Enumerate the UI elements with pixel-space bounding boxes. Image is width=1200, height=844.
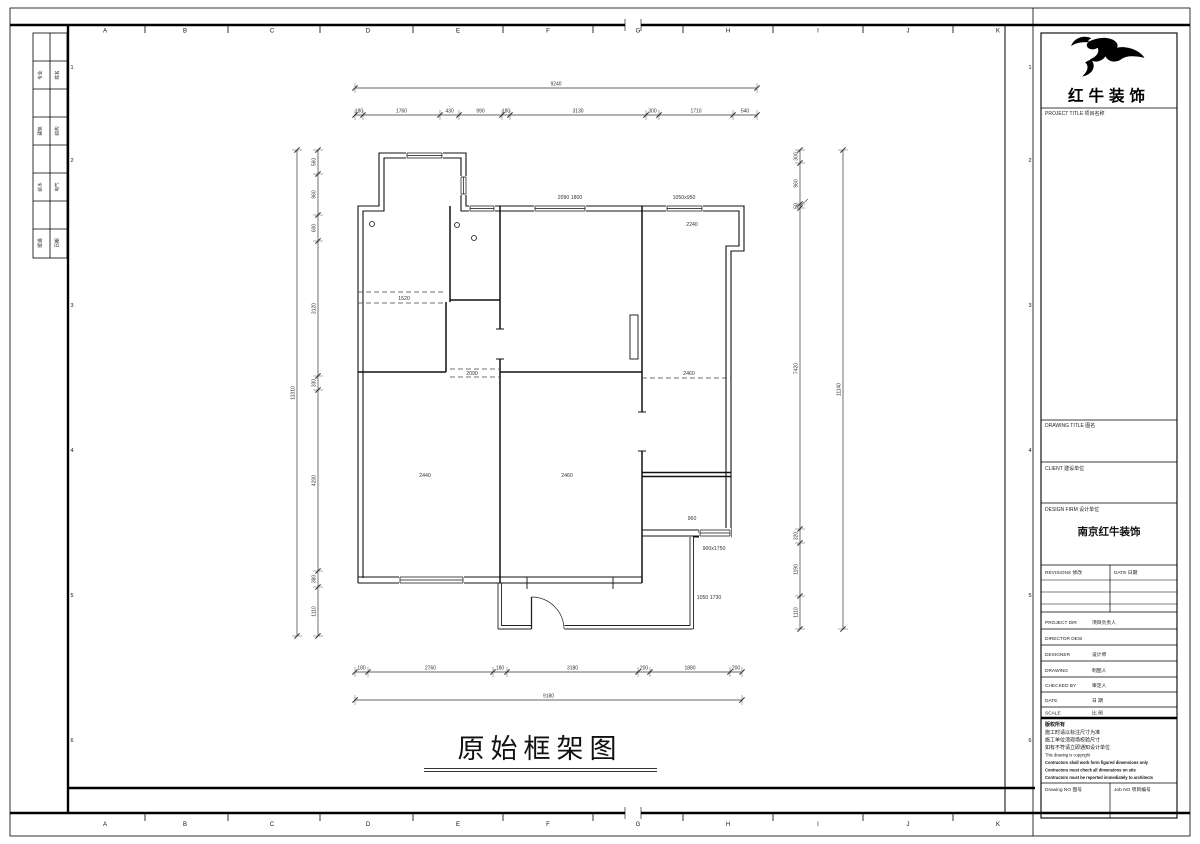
grid-letter-bottom: I: [817, 822, 819, 828]
dim-value: 430: [445, 109, 454, 115]
dim-value: 1110: [312, 606, 318, 617]
staff-label-cn: 设计师: [1092, 651, 1107, 658]
date-col-label: DATE 日期: [1114, 570, 1138, 576]
floor-plan-svg: 专业姓名建筑结构给水电气暖通日期 AABBCCDDEEFFGGHHIIJJKK1…: [0, 0, 1200, 844]
signature-cell: 结构: [54, 126, 61, 136]
signature-cell: 暖通: [37, 238, 44, 248]
plan-dim-label: 900x1750: [703, 546, 726, 552]
client-label: CLIENT 建设单位: [1045, 465, 1084, 472]
note-line: Contractors must be reported immediately…: [1045, 775, 1154, 780]
dim-value: 7420: [794, 363, 800, 374]
signature-cell: 姓名: [54, 70, 61, 79]
dim-value: 3130: [572, 109, 583, 115]
dim-value: 600: [312, 224, 318, 233]
note-line: 如有不符请立即通知设计单位: [1045, 744, 1110, 751]
grid-letter-bottom: K: [996, 822, 1000, 828]
drawing-title-label: DRAWING TITLE 图名: [1045, 422, 1095, 429]
dim-value: 1760: [396, 109, 407, 115]
dim-value: 380: [312, 575, 318, 584]
dim-value: 3180: [567, 666, 578, 672]
staff-label-cn: 项目负责人: [1092, 619, 1116, 626]
plan-dim-label: 1050x950: [673, 195, 696, 201]
staff-label-en: DRAWING: [1045, 668, 1068, 674]
signature-cell: 电气: [54, 182, 60, 192]
grid-number-right: 6: [1028, 738, 1031, 744]
dim-value: 560: [312, 158, 318, 167]
plan-dim-label: 2460: [561, 473, 573, 479]
grid-letter-bottom: B: [183, 822, 187, 828]
title-block-notes: 版权所有施工时请以标注尺寸为准施工单位须现场校验尺寸如有不符请立即通知设计单位T…: [1045, 721, 1154, 780]
door-swing-arc: [532, 597, 565, 629]
grid-letter-bottom: J: [907, 822, 910, 828]
dimension-chains: 1801760430990180313030017105409240180276…: [291, 82, 849, 706]
dim-value: 9240: [550, 82, 561, 88]
dim-value: 50: [794, 203, 800, 209]
signature-cell: 专业: [37, 70, 44, 80]
grid-letter-bottom: G: [636, 822, 641, 828]
dim-value: 3120: [312, 303, 318, 314]
dim-value: 11310: [291, 386, 297, 400]
plan-dim-label: 2460: [683, 371, 695, 377]
grid-letter-top: C: [270, 29, 275, 35]
job-no-label: Job NO 项目编号: [1114, 786, 1151, 793]
plan-dim-label: 2240: [686, 222, 698, 228]
revisions-label: REVISIONS 修改: [1045, 569, 1082, 576]
note-line: 版权所有: [1045, 721, 1065, 728]
dim-value: 300: [794, 152, 800, 161]
plan-dashed-lines: [358, 292, 731, 378]
drawing-no-label: Drawing NO 图号: [1045, 787, 1082, 793]
staff-label-en: DIRECTOR DESI: [1045, 636, 1083, 642]
dim-value: 960: [312, 190, 318, 199]
staff-label-en: PROJECT DIR: [1045, 620, 1077, 626]
staff-label-en: DATE: [1045, 698, 1057, 704]
plan-dim-label: 2440: [419, 473, 431, 479]
drawing-sheet: 专业姓名建筑结构给水电气暖通日期 AABBCCDDEEFFGGHHIIJJKK1…: [0, 0, 1200, 844]
grid-letter-top: B: [183, 29, 187, 35]
grid-number-left: 1: [70, 65, 73, 71]
note-line: 施工单位须现场校验尺寸: [1045, 737, 1100, 744]
plan-windows: [399, 151, 731, 585]
plan-dim-label: 960: [688, 516, 697, 522]
note-line: Contractors shall work form figured dime…: [1045, 760, 1149, 765]
logo-text: 红牛装饰: [1068, 86, 1150, 105]
staff-label-cn: 比 例: [1092, 710, 1103, 717]
staff-label-cn: 日 期: [1092, 698, 1103, 704]
dim-value: 2760: [425, 666, 436, 672]
sheet-frame: [10, 8, 1190, 836]
grid-number-left: 5: [70, 593, 73, 599]
dim-value: 180: [496, 666, 505, 672]
grid-letter-top: D: [366, 29, 371, 35]
title-underline: [424, 769, 657, 772]
grid-number-right: 4: [1028, 448, 1031, 454]
grid-number-right: 5: [1028, 593, 1031, 599]
plan-dim-label: 1050 1730: [697, 595, 722, 601]
dim-value: 300: [648, 109, 657, 115]
signature-strip-text: 专业姓名建筑结构给水电气暖通日期: [37, 70, 61, 248]
dim-value: 4200: [312, 475, 318, 486]
dim-value: 200: [640, 666, 649, 672]
dim-value: 540: [741, 109, 750, 115]
dim-value: 1880: [684, 666, 695, 672]
grid-letter-top: E: [456, 29, 460, 35]
signature-cell: 建筑: [37, 126, 44, 136]
grid-letter-top: I: [817, 29, 819, 35]
grid-number-left: 6: [70, 738, 73, 744]
grid-letter-top: A: [103, 29, 107, 35]
grid-letter-top: K: [996, 29, 1000, 35]
project-title-label: PROJECT TITLE 项目名称: [1045, 110, 1105, 117]
plan-dim-label: 2090 1800: [558, 195, 583, 201]
grid-number-left: 3: [70, 303, 73, 309]
dim-value: 200: [732, 666, 741, 672]
dim-value: 180: [357, 666, 366, 672]
grid-letter-bottom: D: [366, 822, 371, 828]
dim-value: 320: [794, 532, 800, 541]
dim-value: 180: [502, 109, 511, 115]
design-firm-label: DESIGN FIRM 设计单位: [1045, 506, 1099, 513]
grid-letter-top: J: [907, 29, 910, 35]
grid-letter-top: G: [636, 29, 641, 35]
dim-value: 9180: [543, 694, 554, 700]
dim-value: 990: [476, 109, 485, 115]
signature-strip: [33, 33, 67, 258]
plan-dim-label: 1520: [398, 296, 410, 302]
design-firm-value: 南京红牛装饰: [1078, 525, 1141, 538]
dim-value: 330: [312, 379, 318, 388]
plan-dim-label: 2090: [466, 371, 478, 377]
title-block-staff-rows: PROJECT DIR项目负责人DIRECTOR DESIDESIGNER设计师…: [1045, 619, 1116, 717]
grid-band: AABBCCDDEEFFGGHHIIJJKK112233445566: [70, 25, 1031, 828]
grid-letter-bottom: A: [103, 822, 107, 828]
dim-value: 1710: [690, 109, 701, 115]
drawing-title-text: 原始框架图: [458, 734, 623, 764]
grid-number-right: 2: [1028, 158, 1031, 164]
grid-letter-top: F: [546, 29, 550, 35]
dim-value: 960: [794, 179, 800, 188]
dim-value: 180: [355, 109, 364, 115]
dim-value: 1190: [794, 564, 800, 575]
staff-label-en: CHECKED BY: [1045, 683, 1077, 689]
staff-label-en: SCALE: [1045, 711, 1061, 717]
grid-letter-bottom: E: [456, 822, 460, 828]
grid-letter-top: H: [726, 29, 730, 35]
grid-number-left: 4: [70, 448, 73, 454]
note-line: 施工时请以标注尺寸为准: [1045, 729, 1100, 736]
note-line: This drawing is copyright: [1045, 753, 1091, 758]
plan-labels: 2090 18001050x95022401520209024602440246…: [398, 195, 725, 601]
signature-cell: 日期: [55, 238, 61, 248]
dim-value: 11140: [837, 383, 843, 396]
grid-letter-bottom: C: [270, 822, 275, 828]
note-line: Contractors must check all dimensions on…: [1045, 768, 1136, 773]
grid-number-right: 3: [1028, 303, 1031, 309]
dim-value: 1110: [794, 607, 800, 618]
signature-cell: 给水: [37, 182, 44, 192]
staff-label-cn: 审定人: [1092, 682, 1107, 689]
staff-label-cn: 制图人: [1092, 667, 1107, 674]
grid-letter-bottom: H: [726, 822, 730, 828]
redbull-logo-icon: [1071, 37, 1144, 77]
grid-number-right: 1: [1028, 65, 1031, 71]
grid-letter-bottom: F: [546, 822, 550, 828]
staff-label-en: DESIGNER: [1045, 652, 1071, 658]
grid-number-left: 2: [70, 158, 73, 164]
